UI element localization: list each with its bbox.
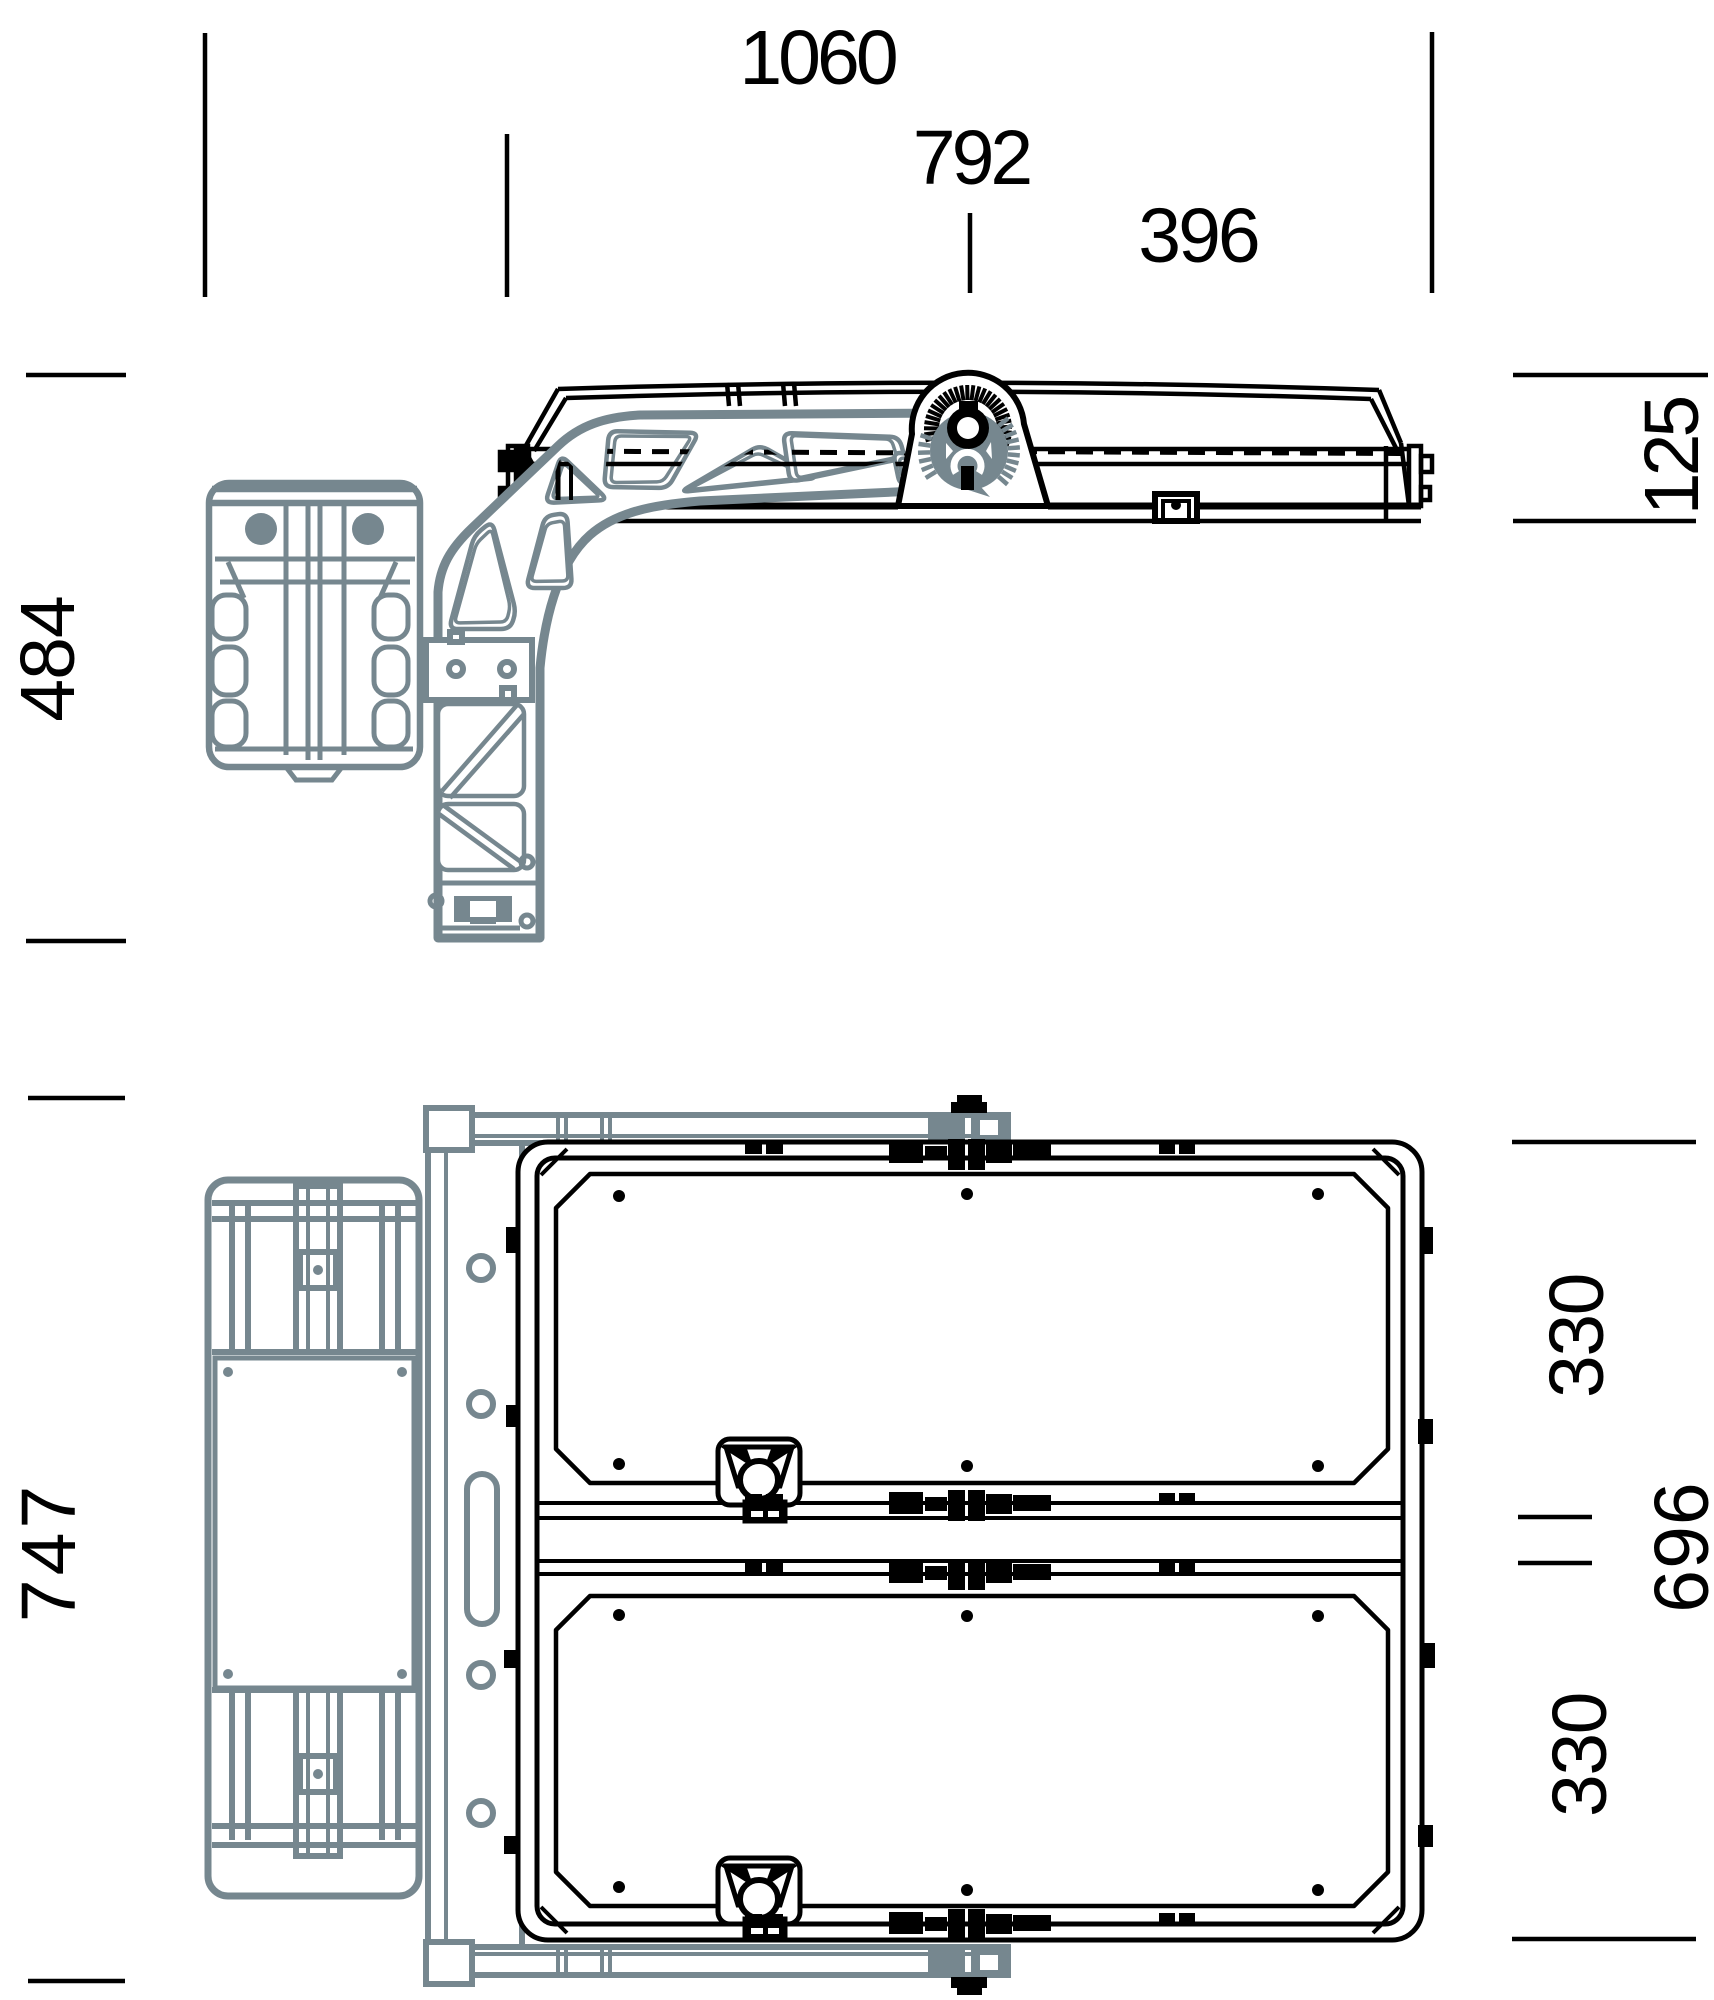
svg-text:330: 330 (1534, 1274, 1620, 1398)
svg-text:396: 396 (1138, 193, 1258, 279)
svg-text:125: 125 (1629, 398, 1714, 516)
svg-text:792: 792 (913, 115, 1030, 201)
svg-text:330: 330 (1537, 1693, 1623, 1817)
svg-text:747: 747 (6, 1482, 92, 1622)
svg-text:484: 484 (5, 596, 91, 721)
svg-text:1060: 1060 (739, 15, 895, 101)
svg-text:696: 696 (1639, 1481, 1714, 1612)
